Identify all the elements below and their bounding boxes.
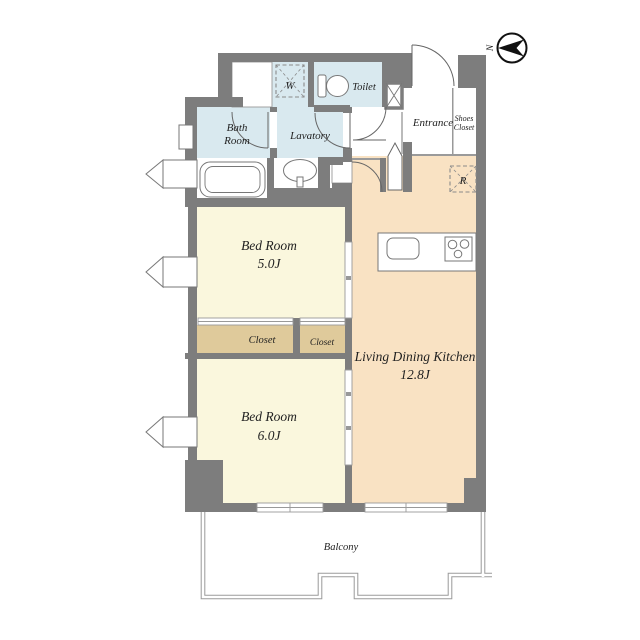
bedroom6-sliding-partition — [345, 370, 352, 465]
north-indicator: N — [486, 34, 527, 63]
bath-room-label2: Room — [223, 135, 250, 147]
bathtub-icon — [200, 162, 265, 197]
closet-main-floor — [197, 325, 293, 353]
bedroom6-label: Bed Room — [241, 409, 297, 424]
closet-main-label: Closet — [249, 335, 277, 346]
washbasin-icon — [284, 160, 317, 188]
washer-symbol-label: W — [285, 80, 295, 92]
pipe-shaft-icon — [386, 83, 402, 108]
window-icon — [146, 160, 197, 188]
partition-handle — [346, 426, 351, 430]
partition-handle — [346, 276, 351, 280]
shoes-closet-label: Shoes — [455, 114, 474, 123]
window-icon — [365, 503, 447, 512]
entrance-door-arc — [412, 45, 454, 86]
ldk-size: 12.8J — [400, 367, 431, 382]
bath-window-icon — [179, 125, 193, 149]
ldk-floor — [352, 156, 476, 503]
bedroom5-label: Bed Room — [241, 238, 297, 253]
floor-plan: Bath Room Lavatory Toilet Entrance Shoes… — [0, 0, 640, 640]
refrigerator-symbol-label: R — [459, 175, 467, 187]
toilet-label: Toilet — [352, 82, 377, 93]
window-icon — [146, 417, 197, 447]
lavatory-label: Lavatory — [289, 130, 330, 142]
sink-icon — [387, 238, 419, 259]
floor-plan-drawing: Bath Room Lavatory Toilet Entrance Shoes… — [0, 0, 640, 640]
bedroom6-size: 6.0J — [258, 428, 282, 443]
bath-room-label: Bath — [227, 122, 248, 134]
stove-icon — [445, 237, 472, 261]
north-label: N — [486, 44, 496, 52]
shoes-closet-label2: Closet — [454, 123, 475, 132]
toilet-door-arc — [353, 107, 386, 140]
kitchen-counter-icon — [378, 233, 476, 271]
toilet-icon — [318, 75, 349, 97]
entrance-label: Entrance — [412, 117, 453, 129]
balcony-label: Balcony — [324, 542, 359, 553]
closet-small-label: Closet — [310, 338, 335, 348]
window-icon — [257, 503, 323, 512]
ldk-label: Living Dining Kitchen — [354, 349, 476, 364]
partition-handle — [346, 392, 351, 396]
bedroom5-size: 5.0J — [258, 256, 282, 271]
balcony-outline — [203, 512, 492, 597]
window-icon — [146, 257, 197, 287]
